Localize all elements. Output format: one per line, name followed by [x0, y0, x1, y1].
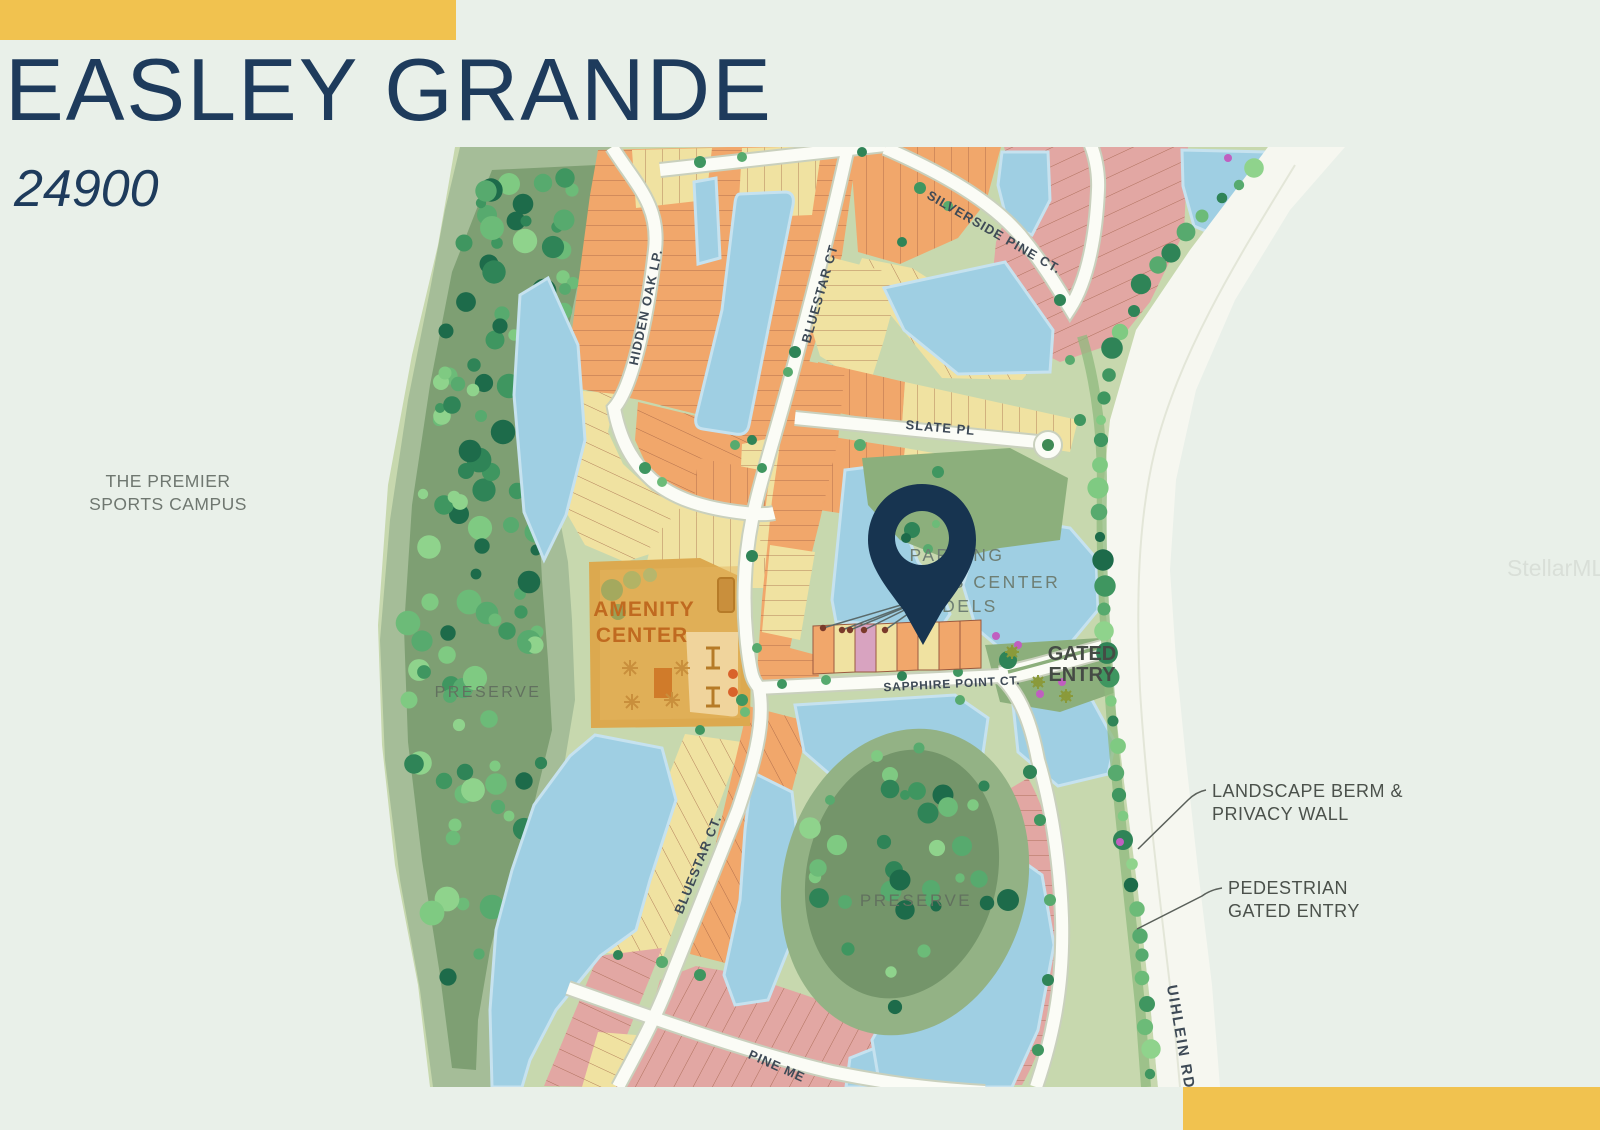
- svg-text:THE PREMIER: THE PREMIER: [105, 471, 230, 491]
- svg-text:S CENTER: S CENTER: [952, 572, 1060, 592]
- svg-text:PRESERVE: PRESERVE: [435, 684, 542, 701]
- svg-text:SPORTS CAMPUS: SPORTS CAMPUS: [89, 494, 247, 514]
- svg-text:CENTER: CENTER: [596, 624, 688, 647]
- svg-text:24900: 24900: [13, 160, 159, 218]
- svg-text:GATED ENTRY: GATED ENTRY: [1228, 901, 1360, 921]
- svg-text:PRESERVE: PRESERVE: [860, 891, 972, 910]
- svg-text:ENTRY: ENTRY: [1048, 664, 1116, 686]
- svg-text:StellarMLS: StellarMLS: [1507, 555, 1600, 581]
- svg-text:LANDSCAPE BERM &: LANDSCAPE BERM &: [1212, 781, 1403, 801]
- svg-text:PRIVACY WALL: PRIVACY WALL: [1212, 804, 1349, 824]
- svg-text:GATED: GATED: [1048, 643, 1117, 665]
- svg-text:AMENITY: AMENITY: [593, 598, 695, 621]
- svg-text:PEDESTRIAN: PEDESTRIAN: [1228, 878, 1348, 898]
- svg-text:EASLEY GRANDE: EASLEY GRANDE: [5, 40, 773, 139]
